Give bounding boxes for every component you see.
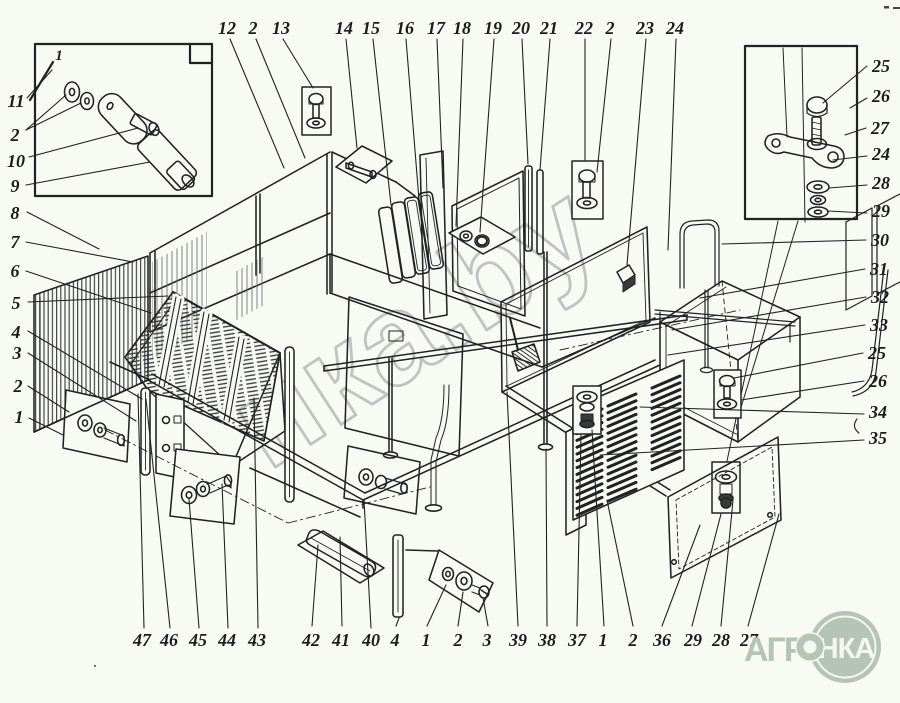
svg-text:16: 16 xyxy=(396,18,414,38)
svg-text:12: 12 xyxy=(218,18,236,38)
svg-text:20: 20 xyxy=(511,18,530,38)
svg-text:39: 39 xyxy=(508,630,527,650)
svg-text:2: 2 xyxy=(248,18,258,38)
svg-text:17: 17 xyxy=(427,18,446,38)
svg-text:2: 2 xyxy=(10,125,20,145)
svg-text:35: 35 xyxy=(868,428,887,448)
svg-text:8: 8 xyxy=(11,203,20,223)
svg-text:47: 47 xyxy=(132,630,152,650)
svg-text:1: 1 xyxy=(15,407,24,427)
svg-text:25: 25 xyxy=(871,56,890,76)
svg-text:45: 45 xyxy=(188,630,207,650)
svg-text:31: 31 xyxy=(869,259,888,279)
svg-text:18: 18 xyxy=(453,18,471,38)
svg-text:3: 3 xyxy=(482,630,492,650)
svg-text:1: 1 xyxy=(422,630,431,650)
svg-text:26: 26 xyxy=(871,86,890,106)
svg-text:22: 22 xyxy=(574,18,593,38)
svg-text:34: 34 xyxy=(868,402,887,422)
svg-text:29: 29 xyxy=(683,630,702,650)
svg-text:2: 2 xyxy=(453,630,463,650)
svg-text:1: 1 xyxy=(599,630,608,650)
svg-text:44: 44 xyxy=(217,630,236,650)
svg-text:32: 32 xyxy=(870,287,889,307)
svg-text:3: 3 xyxy=(12,343,22,363)
svg-text:26: 26 xyxy=(868,371,887,391)
svg-text:НКА: НКА xyxy=(818,633,876,665)
svg-text:14: 14 xyxy=(335,18,353,38)
svg-text:6: 6 xyxy=(11,261,20,281)
svg-text:7: 7 xyxy=(11,232,21,252)
svg-text:1: 1 xyxy=(55,48,63,64)
svg-text:46: 46 xyxy=(159,630,178,650)
svg-text:30: 30 xyxy=(870,230,889,250)
svg-text:21: 21 xyxy=(539,18,558,38)
svg-text:36: 36 xyxy=(652,630,671,650)
svg-text:41: 41 xyxy=(331,630,350,650)
svg-text:11: 11 xyxy=(7,91,24,111)
svg-text:2: 2 xyxy=(628,630,638,650)
svg-text:5: 5 xyxy=(12,293,21,313)
svg-text:19: 19 xyxy=(484,18,502,38)
svg-text:28: 28 xyxy=(711,630,730,650)
svg-text:10: 10 xyxy=(7,151,25,171)
svg-text:15: 15 xyxy=(362,18,380,38)
svg-text:43: 43 xyxy=(247,630,266,650)
svg-text:4: 4 xyxy=(390,630,400,650)
svg-text:13: 13 xyxy=(272,18,290,38)
svg-text:28: 28 xyxy=(871,173,890,193)
svg-text:42: 42 xyxy=(301,630,320,650)
svg-text:38: 38 xyxy=(537,630,556,650)
svg-text:33: 33 xyxy=(869,315,888,335)
svg-text:37: 37 xyxy=(567,630,587,650)
svg-text:9: 9 xyxy=(11,176,20,196)
svg-text:29: 29 xyxy=(871,201,890,221)
svg-text:25: 25 xyxy=(867,343,886,363)
svg-text:40: 40 xyxy=(361,630,380,650)
svg-text:24: 24 xyxy=(665,18,684,38)
svg-text:4: 4 xyxy=(11,322,21,342)
svg-text:24: 24 xyxy=(871,144,890,164)
svg-text:2: 2 xyxy=(605,18,615,38)
svg-text:23: 23 xyxy=(635,18,654,38)
svg-text:27: 27 xyxy=(870,118,890,138)
svg-text:2: 2 xyxy=(13,376,23,396)
